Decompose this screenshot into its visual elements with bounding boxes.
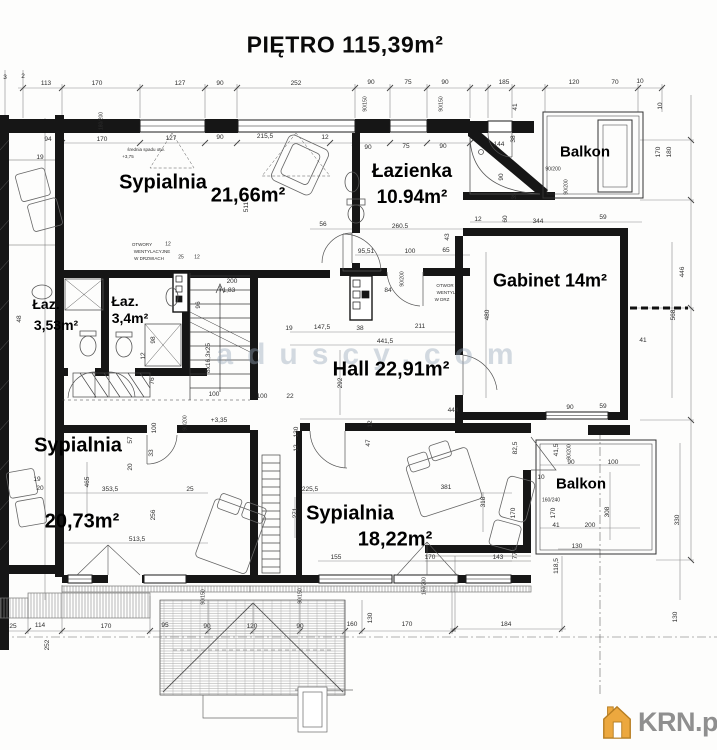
walls <box>0 115 630 650</box>
house-icon <box>600 702 634 742</box>
axis-lines <box>0 430 717 695</box>
page-title: PIĘTRO 115,39m² <box>247 32 444 59</box>
krn-logo: KRN.pl <box>600 702 717 742</box>
logo-text: KRN.pl <box>638 707 717 738</box>
balcony-railings <box>536 112 656 554</box>
floorplan-drawing <box>0 0 717 750</box>
watermark-text: aduscy.com <box>216 338 527 372</box>
floorplan-page: PIĘTRO 115,39m² aduscy.com Sypialnia21,6… <box>0 0 717 750</box>
roof <box>160 600 353 732</box>
vent-blocks <box>173 273 372 320</box>
